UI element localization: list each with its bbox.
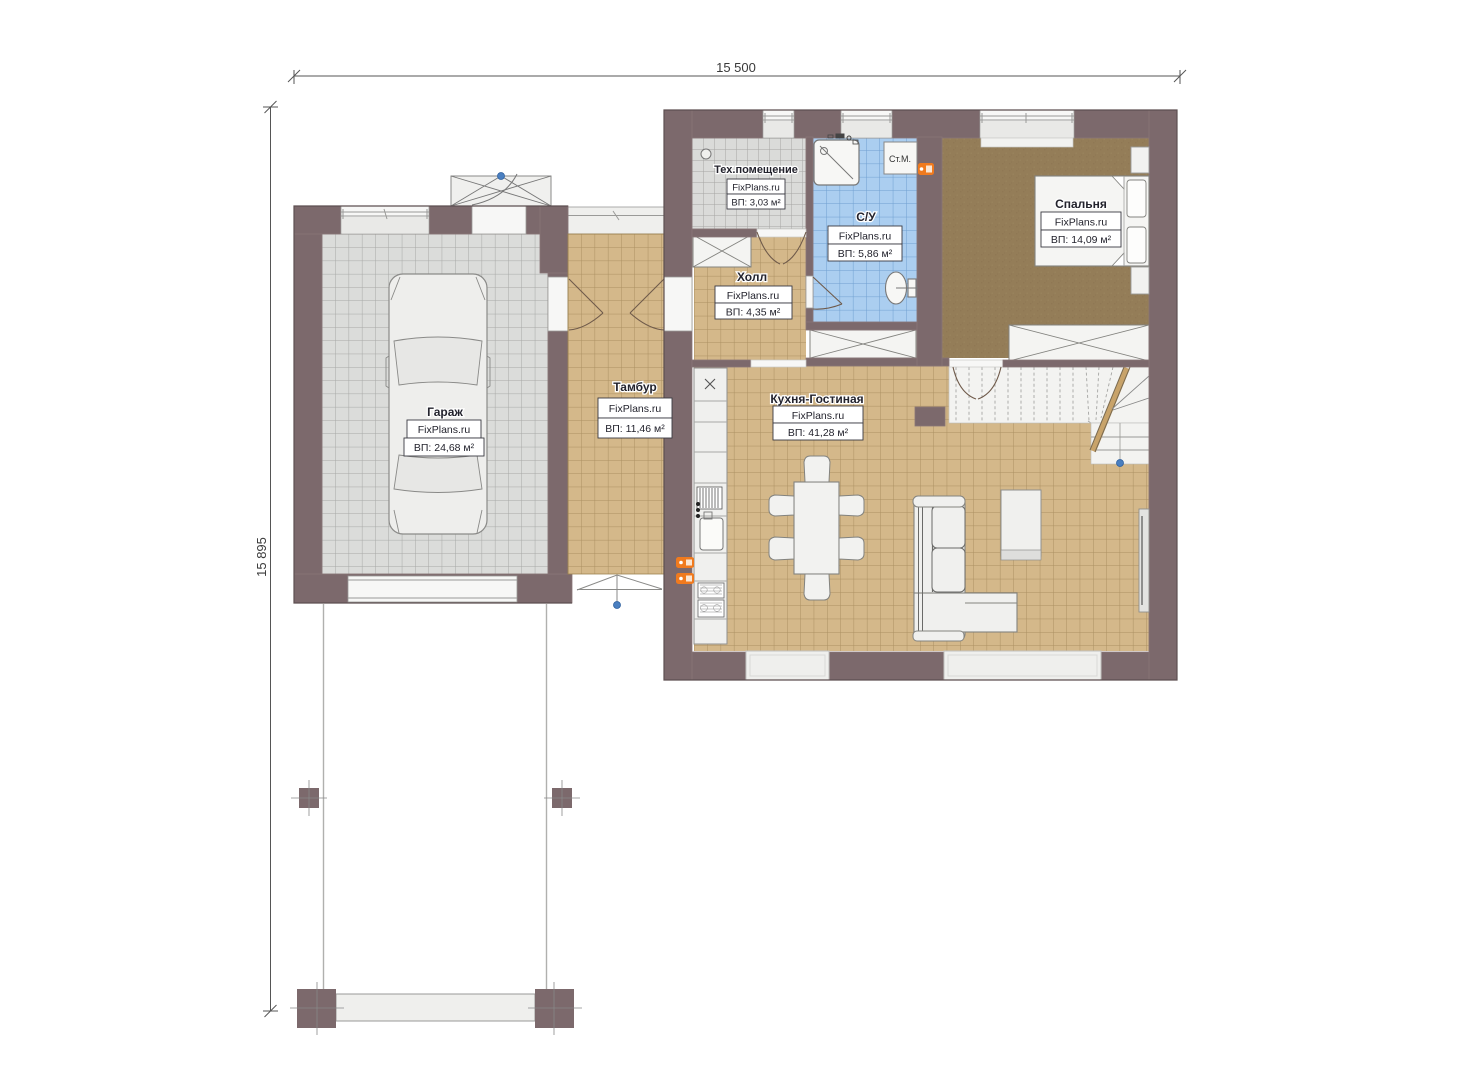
svg-text:Спальня: Спальня	[1055, 197, 1107, 211]
svg-text:ВП: 3,03 м²: ВП: 3,03 м²	[731, 198, 780, 209]
svg-text:FixPlans.ru: FixPlans.ru	[839, 231, 892, 243]
svg-text:ВП: 24,68 м²: ВП: 24,68 м²	[414, 442, 475, 454]
svg-text:FixPlans.ru: FixPlans.ru	[792, 410, 845, 422]
svg-text:ВП: 41,28 м²: ВП: 41,28 м²	[788, 427, 849, 439]
svg-text:FixPlans.ru: FixPlans.ru	[727, 290, 780, 302]
svg-text:ВП: 4,35 м²: ВП: 4,35 м²	[726, 307, 781, 319]
svg-text:ВП: 14,09 м²: ВП: 14,09 м²	[1051, 234, 1112, 246]
svg-text:FixPlans.ru: FixPlans.ru	[1055, 217, 1108, 229]
svg-text:Гараж: Гараж	[427, 405, 463, 419]
svg-text:Тамбур: Тамбур	[613, 380, 657, 394]
svg-text:Тех.помещение: Тех.помещение	[714, 164, 798, 176]
svg-text:ВП: 5,86 м²: ВП: 5,86 м²	[838, 248, 893, 260]
svg-text:Холл: Холл	[737, 270, 767, 284]
svg-text:FixPlans.ru: FixPlans.ru	[418, 424, 471, 436]
svg-text:FixPlans.ru: FixPlans.ru	[609, 403, 662, 415]
svg-text:15 500: 15 500	[716, 60, 756, 75]
svg-text:С/У: С/У	[856, 210, 876, 224]
svg-text:Кухня-Гостиная: Кухня-Гостиная	[770, 392, 863, 406]
svg-text:FixPlans.ru: FixPlans.ru	[732, 183, 780, 194]
svg-text:15 895: 15 895	[254, 537, 269, 577]
svg-text:ВП: 11,46 м²: ВП: 11,46 м²	[605, 423, 665, 435]
svg-text:Ст.М.: Ст.М.	[889, 154, 911, 164]
